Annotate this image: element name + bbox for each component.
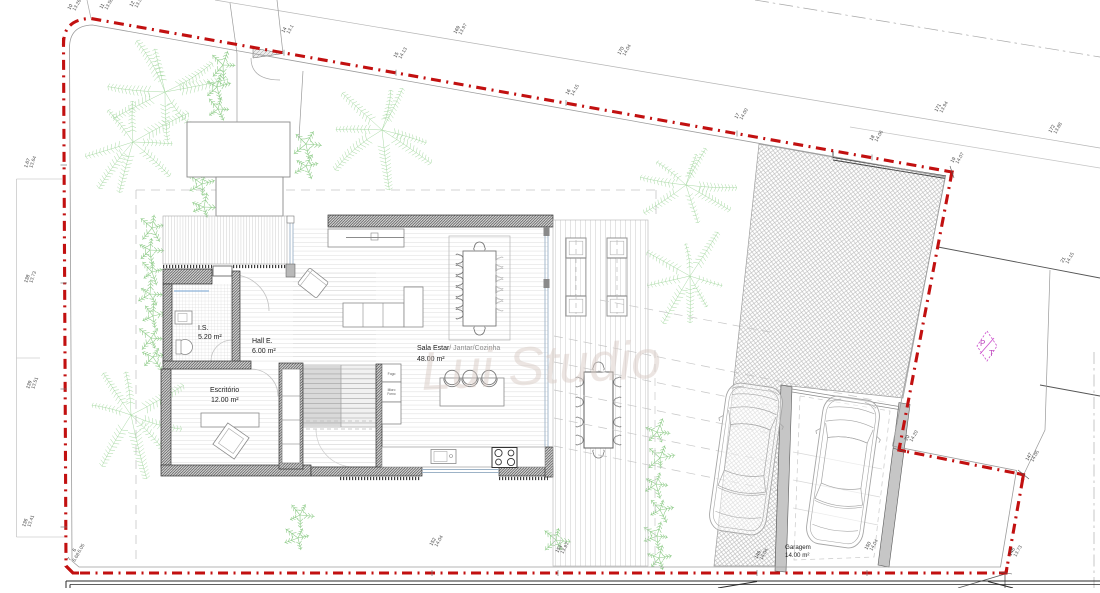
svg-text:6.00 m²: 6.00 m² <box>252 348 276 355</box>
svg-text:12.00 m²: 12.00 m² <box>211 397 239 404</box>
svg-text:Escritório: Escritório <box>210 387 239 394</box>
svg-text:Fogo: Fogo <box>388 372 396 376</box>
svg-text:Hall E.: Hall E. <box>252 338 273 345</box>
svg-text:5.20 m²: 5.20 m² <box>198 334 222 341</box>
svg-text:P: P <box>980 339 985 348</box>
svg-text:I.S.: I.S. <box>198 325 209 332</box>
svg-text:Forno: Forno <box>387 392 396 396</box>
svg-text:Garagem: Garagem <box>785 544 811 551</box>
svg-text:Lui Studio: Lui Studio <box>419 329 662 401</box>
svg-text:T: T <box>989 349 994 358</box>
svg-text:14.00 m²: 14.00 m² <box>785 552 809 559</box>
